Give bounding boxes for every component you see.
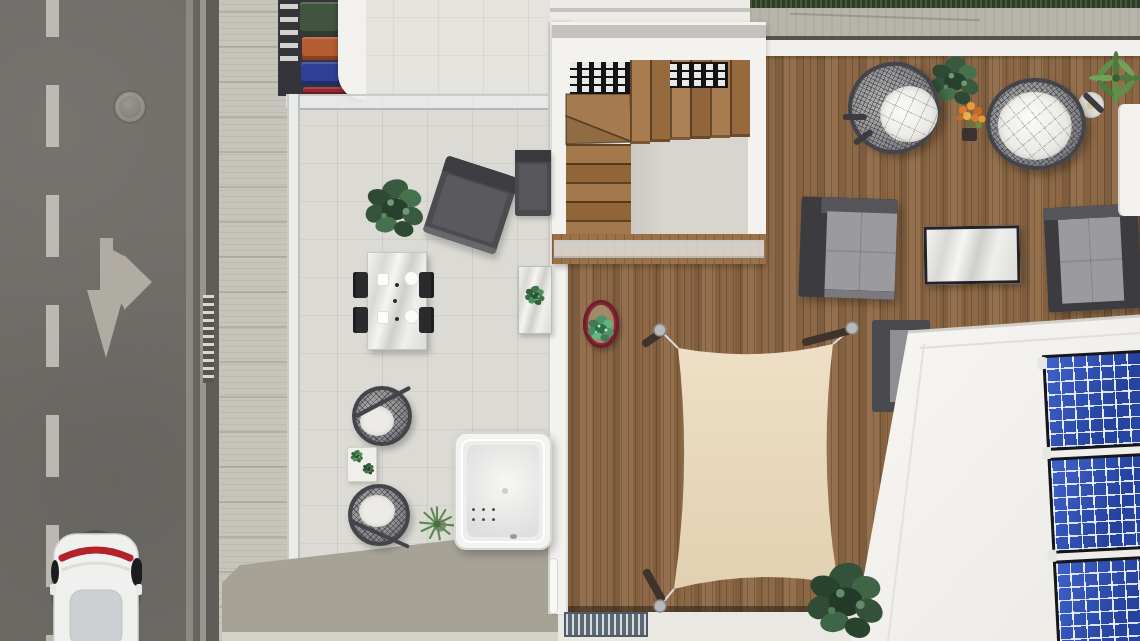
stair-grate-right <box>670 62 728 88</box>
stair-step <box>566 201 631 220</box>
solar-panel <box>1053 555 1140 641</box>
stair-step <box>630 60 650 144</box>
chair-back <box>515 150 551 162</box>
armchair-cushion <box>1058 217 1124 304</box>
terrace-railing-top <box>286 94 558 110</box>
solar-bracket <box>1047 550 1057 562</box>
parapet-line <box>550 8 768 12</box>
solar-bracket <box>1042 447 1052 459</box>
curved-wall <box>338 0 366 100</box>
hot-tub-drain <box>510 534 517 539</box>
candle <box>393 299 397 303</box>
terrace-railing-left <box>287 94 300 560</box>
dining-chair <box>353 307 368 333</box>
chair-seat <box>519 164 547 210</box>
dining-chair <box>353 272 368 298</box>
parked-car <box>50 528 142 641</box>
big-leaf-plant <box>800 556 892 641</box>
gutter-dark <box>193 0 200 641</box>
stair-step <box>650 60 670 142</box>
air-plant <box>416 500 458 548</box>
terrace-plant <box>362 172 428 242</box>
rooftop-render <box>0 0 1140 641</box>
napkin <box>377 273 389 286</box>
egg-cushion <box>359 495 395 527</box>
solar-array <box>1042 349 1140 641</box>
pot-succulent <box>586 312 616 344</box>
candle <box>395 283 399 287</box>
mini-plant <box>350 449 364 463</box>
stair-step <box>566 163 631 182</box>
hot-tub-jet <box>482 508 485 511</box>
egg-handle <box>843 114 867 120</box>
stair-step <box>566 144 631 163</box>
stair-step <box>730 60 750 137</box>
deck-flower-pot <box>948 96 990 144</box>
curb <box>186 0 193 641</box>
egg-chair-b <box>348 484 410 546</box>
napkin <box>377 311 389 324</box>
deck-coffee-table <box>924 225 1021 285</box>
sail-canvas <box>674 344 838 589</box>
hot-tub-jet <box>472 518 475 521</box>
palm-plant <box>1088 48 1140 108</box>
drain-grate <box>564 612 648 637</box>
staircase <box>552 22 766 264</box>
stair-glass-railing <box>554 240 764 258</box>
candle <box>395 317 399 321</box>
alley-stairs <box>280 4 298 68</box>
hot-tub <box>454 432 552 550</box>
gutter-grate <box>203 295 214 383</box>
deck-armchair-right <box>1043 204 1140 313</box>
dining-table <box>367 252 427 350</box>
lower-ground-edge <box>222 632 558 641</box>
deck-armchair-left <box>798 196 897 299</box>
plate <box>404 271 419 286</box>
stair-top-wall <box>552 25 766 38</box>
solar-panel <box>1047 452 1140 554</box>
dining-chair <box>419 307 434 333</box>
egg-cushion-tufted <box>994 88 1075 163</box>
armchair-cushion <box>825 211 898 291</box>
tiled-terrace-upper <box>348 0 558 94</box>
hot-tub-jet <box>492 508 495 511</box>
egg-chair-a <box>352 386 412 446</box>
sidewalk <box>219 0 293 641</box>
hedge <box>750 0 1140 8</box>
stair-grate-left <box>570 62 630 94</box>
white-planter <box>1118 104 1140 216</box>
solar-bracket <box>1037 357 1047 369</box>
solar-panel <box>1042 349 1140 451</box>
stair-step <box>566 182 631 201</box>
turn-arrow-marking <box>86 230 158 362</box>
hot-tub-jet <box>482 518 485 521</box>
wall-pipe <box>549 558 558 614</box>
mini-plant <box>362 462 375 475</box>
terrace-lounge-chair-2 <box>515 150 551 216</box>
stair-landing <box>630 136 748 238</box>
dining-chair <box>419 272 434 298</box>
hot-tub-jet <box>472 508 475 511</box>
console-plant <box>524 284 546 306</box>
plate <box>404 309 419 324</box>
manhole-cover <box>113 90 147 124</box>
hot-tub-center <box>502 488 508 494</box>
hot-tub-jet <box>492 518 495 521</box>
parapet-top-middle <box>550 0 768 24</box>
